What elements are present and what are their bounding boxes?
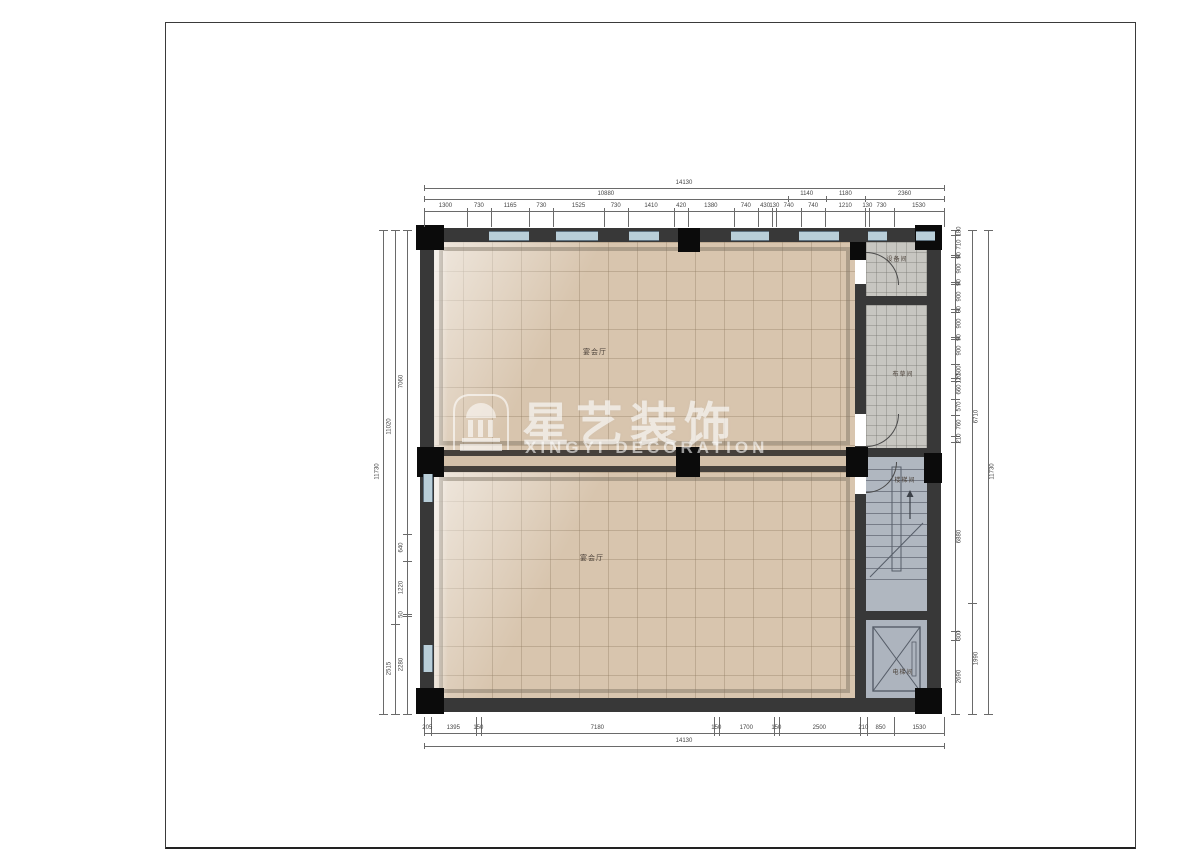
- dim-bottom-detail-label-10: 1530: [897, 725, 941, 732]
- dim-bottom-total-tick-1: [944, 743, 945, 749]
- window-left-1: [423, 474, 433, 502]
- wall-bottom: [420, 698, 941, 712]
- banquet-hall-upper-border: [439, 247, 850, 445]
- banquet-hall-lower-border: [439, 477, 850, 693]
- dim-left-outer-tick-1: [379, 714, 388, 715]
- partition-stair-elevator: [866, 611, 927, 620]
- dim-top-groups-label-3: 2360: [883, 191, 927, 198]
- dim-bottom-detail-label-9: 850: [859, 725, 903, 732]
- dim-top-detail-tick-12: [776, 208, 777, 227]
- drawing-canvas: 宴会厅 宴会厅 设备间 布草间 楼梯间 电梯间 星艺装饰 XINGYI DE: [0, 0, 1200, 849]
- dim-top-detail-tick-6: [628, 208, 629, 227]
- dim-top-detail-tick-8: [688, 208, 689, 227]
- dim-left-detail-label-3: 50: [399, 592, 406, 636]
- window-top-6: [868, 231, 887, 241]
- dim-right-outer-tick-1: [984, 714, 993, 715]
- dim-top-groups-label-1: 1140: [785, 191, 829, 198]
- window-top-2: [556, 231, 598, 241]
- column-bottom-left: [416, 688, 444, 714]
- dim-top-detail-tick-10: [758, 208, 759, 227]
- dim-right-groups-label-1: 1990: [974, 636, 981, 680]
- partition-equipment-linen: [866, 296, 927, 305]
- dim-left-detail-tick-5: [403, 714, 412, 715]
- dim-top-total-tick-0: [424, 185, 425, 191]
- dim-top-detail-tick-17: [894, 208, 895, 227]
- column-top-left: [416, 225, 444, 250]
- partition-linen-stair: [866, 448, 927, 457]
- dim-right-detail-label-15: 210: [957, 416, 964, 460]
- room-label-linen: 布草间: [884, 369, 922, 378]
- dim-right-detail-label-18: 2690: [957, 654, 964, 698]
- dim-top-total-line: [424, 188, 944, 189]
- room-label-stair: 楼梯间: [886, 475, 924, 484]
- divider-wall-upper: [420, 450, 856, 456]
- curtain-band-upper: [434, 242, 448, 450]
- window-top-7: [916, 231, 935, 241]
- partition-wall-seg2: [855, 284, 866, 414]
- dim-right-groups-tick-1: [968, 603, 977, 604]
- dim-top-groups-tick-0: [424, 196, 425, 202]
- dim-bottom-total-tick-0: [424, 743, 425, 749]
- dim-top-detail-tick-1: [467, 208, 468, 227]
- dim-bottom-detail-label-6: 150: [754, 725, 798, 732]
- room-label-elevator: 电梯间: [884, 667, 922, 676]
- dim-top-detail-tick-13: [801, 208, 802, 227]
- dim-left-detail-tick-0: [403, 230, 412, 231]
- dim-top-detail-tick-16: [869, 208, 870, 227]
- dim-bottom-total-line: [424, 746, 944, 747]
- dim-top-detail-tick-9: [734, 208, 735, 227]
- dim-left-outer-tick-0: [379, 230, 388, 231]
- elevator-shaft-floor: [866, 620, 927, 698]
- divider-wall-lower: [420, 466, 856, 472]
- dim-bottom-detail-label-7: 2500: [797, 725, 841, 732]
- dim-left-groups-tick-2: [391, 714, 400, 715]
- dim-right-outer-tick-0: [984, 230, 993, 231]
- dim-right-detail-label-16: 6880: [957, 514, 964, 558]
- column-bottom-right: [915, 688, 942, 714]
- dim-top-detail-tick-0: [424, 208, 425, 227]
- dim-left-detail-label-1: 640: [399, 525, 406, 569]
- divider-corridor-floor: [434, 456, 855, 466]
- elevator-linework: [866, 620, 927, 698]
- dim-left-outer-label-0: 11730: [375, 450, 382, 494]
- partition-wall-seg4: [855, 494, 866, 698]
- dim-right-groups-tick-2: [968, 714, 977, 715]
- window-top-5: [799, 231, 839, 241]
- column-partition-top: [850, 242, 866, 260]
- dim-left-detail-line: [407, 230, 408, 714]
- room-label-hall-lower: 宴会厅: [567, 553, 617, 563]
- dim-right-groups-tick-0: [968, 230, 977, 231]
- dim-top-groups-label-0: 10880: [584, 191, 628, 198]
- dim-top-detail-tick-2: [491, 208, 492, 227]
- dim-bottom-detail-tick-11: [944, 717, 945, 736]
- dim-left-groups-tick-0: [391, 230, 400, 231]
- dim-top-total-tick-1: [944, 185, 945, 191]
- dim-right-detail-tick-19: [951, 714, 960, 715]
- column-divider-left: [417, 447, 444, 477]
- column-top-middle: [678, 228, 700, 252]
- dim-top-detail-tick-3: [529, 208, 530, 227]
- room-label-equipment: 设备间: [878, 254, 916, 263]
- window-top-3: [629, 231, 659, 241]
- dim-left-detail-label-0: 7060: [399, 359, 406, 403]
- dim-top-detail-tick-11: [772, 208, 773, 227]
- column-right-wall-mid: [924, 453, 942, 483]
- dim-left-groups-line: [395, 230, 396, 714]
- dim-right-outer-label-0: 11730: [990, 450, 997, 494]
- dim-top-detail-tick-7: [674, 208, 675, 227]
- dim-top-detail-label-17: 1530: [897, 203, 941, 210]
- dim-top-detail-tick-15: [865, 208, 866, 227]
- dim-right-groups-label-0: 6710: [974, 394, 981, 438]
- dim-left-detail-label-4: 2280: [399, 642, 406, 686]
- dim-top-detail-tick-18: [944, 208, 945, 227]
- dim-top-detail-tick-14: [825, 208, 826, 227]
- curtain-band-lower: [434, 472, 448, 698]
- window-left-2: [423, 645, 433, 672]
- column-divider-middle: [676, 447, 700, 477]
- window-top-4: [731, 231, 769, 241]
- dim-bottom-total-label-0: 14130: [662, 738, 706, 745]
- dim-left-groups-label-1: 2515: [387, 647, 394, 691]
- column-divider-right: [846, 447, 868, 477]
- dim-top-groups-label-2: 1180: [823, 191, 867, 198]
- dim-left-groups-label-0: 11020: [387, 405, 394, 449]
- dim-bottom-detail-label-2: 150: [456, 725, 500, 732]
- dim-top-total-label-0: 14130: [662, 180, 706, 187]
- dim-top-detail-tick-4: [553, 208, 554, 227]
- dim-right-detail-label-17: 300: [957, 613, 964, 657]
- room-label-hall-upper: 宴会厅: [570, 347, 620, 357]
- dim-bottom-detail-label-3: 7180: [575, 725, 619, 732]
- dim-left-outer-line: [383, 230, 384, 714]
- dim-top-groups-tick-4: [944, 196, 945, 202]
- dim-top-detail-tick-5: [604, 208, 605, 227]
- window-top-1: [489, 231, 529, 241]
